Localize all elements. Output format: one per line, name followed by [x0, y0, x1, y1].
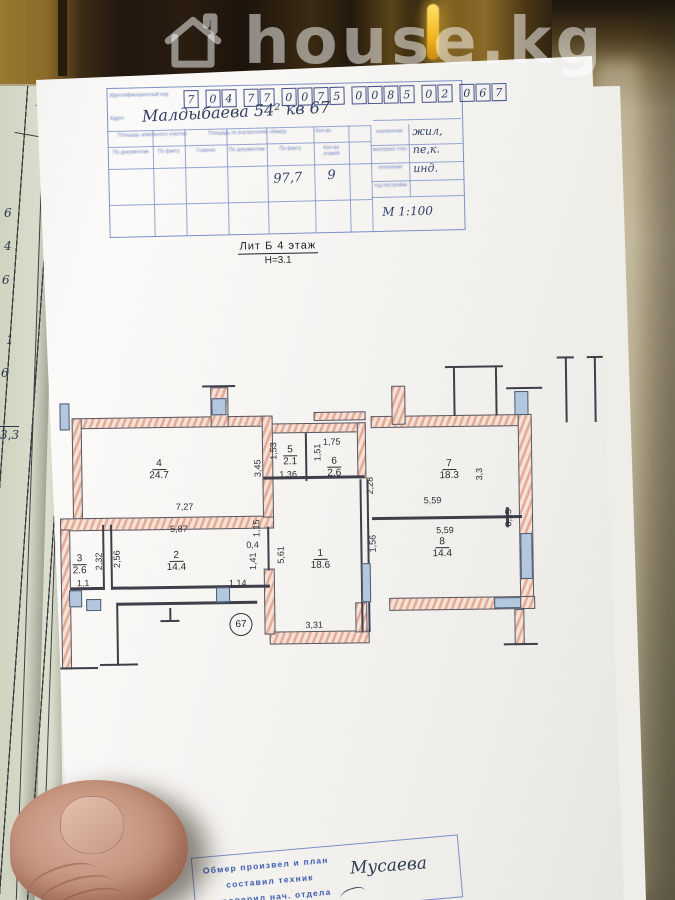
dimension-label: 5,59: [424, 496, 442, 505]
column-header: Главная: [186, 147, 226, 154]
wall-segment: [116, 603, 119, 666]
side-doc-entry: 3,3: [0, 426, 19, 442]
form-line: [372, 179, 464, 182]
dimension-label: 1,41: [249, 552, 258, 570]
dimension-label: 1,14: [229, 579, 247, 588]
wall-segment: [72, 416, 270, 430]
section-header: Площадь земельного участка: [109, 131, 195, 139]
wall-tick: [557, 356, 574, 358]
side-doc-entry: 6: [4, 206, 12, 220]
wall-segment: [263, 422, 366, 433]
id-digit: 0: [367, 86, 382, 104]
wall-tick: [202, 385, 235, 387]
wall-segment: [305, 433, 308, 481]
row-value: инд.: [413, 162, 438, 176]
apartment-number-circle: 67: [229, 613, 252, 636]
dimension-label: 1,53: [269, 442, 278, 460]
room-area: 2.6: [327, 468, 341, 480]
column-header: По факту: [268, 145, 313, 152]
dimension-label: 5,59: [436, 526, 454, 535]
wall-segment: [495, 367, 498, 415]
room-number: 6: [327, 456, 341, 468]
room-area: 24.7: [149, 470, 169, 482]
dimension-label: 2,28: [366, 477, 375, 495]
room-number: 8: [435, 536, 449, 548]
side-doc-entry: 4: [4, 239, 12, 253]
wall-segment: [60, 516, 274, 532]
room-area: 14.4: [432, 548, 452, 560]
ceiling-height-label: Н=3.1: [222, 254, 334, 267]
row-value: пе,к.: [413, 143, 440, 157]
window: [59, 403, 69, 430]
window: [69, 590, 82, 607]
room-number: 1: [313, 548, 327, 560]
dimension-label: 5,61: [277, 546, 286, 564]
id-digit: 0: [421, 85, 436, 103]
wall-segment: [391, 386, 406, 425]
wall-tick: [504, 643, 538, 645]
form-line: [373, 118, 461, 121]
id-code-label: Идентификационный код: [109, 91, 181, 99]
dimension-label: 1,56: [369, 535, 378, 553]
form-line: [110, 199, 372, 206]
column-header: Кол-во этажей: [315, 145, 348, 158]
row-label: год постройки: [373, 182, 409, 189]
room-number: 4: [152, 458, 166, 470]
dimension-label: 2,32: [95, 553, 104, 571]
wall-segment: [453, 368, 456, 416]
total-area-value: 97,7: [273, 170, 303, 187]
side-doc-entry: 1: [6, 333, 14, 347]
form-line: [372, 195, 464, 198]
cabinet-frame: [58, 0, 67, 76]
room-area: 14.4: [167, 562, 187, 574]
dimension-label: 1,1: [77, 579, 90, 588]
main-sheet: Идентификационный код 7 0 4 7 7 0 0 7 5 …: [0, 0, 675, 900]
id-digit: 5: [329, 87, 344, 105]
room-number: 3: [73, 553, 87, 565]
wall-segment: [594, 356, 597, 422]
floor-plan: 7,27 5,87 3,45 1,53 1,36 1,75 1,51 2,28 …: [56, 356, 566, 679]
id-digit: 8: [383, 85, 398, 103]
thumbnail-nail: [60, 796, 124, 854]
wall-segment: [264, 569, 276, 635]
id-digit: 0: [351, 86, 366, 104]
id-digit: 6: [475, 83, 490, 101]
dimension-label: 1,75: [323, 438, 341, 447]
dimension-label: 1,15: [252, 519, 261, 537]
dimension-label: 3,45: [253, 459, 262, 477]
wall-segment: [514, 609, 525, 645]
wall-segment: [117, 601, 257, 606]
wall-tick: [506, 387, 542, 390]
site-name: house.kg: [244, 5, 605, 79]
row-label: отопление: [372, 164, 408, 171]
row-label: назначение: [371, 128, 407, 135]
room-label: 4 24.7: [149, 458, 169, 482]
dimension-label: 0,4: [246, 541, 259, 550]
dimension-label: 3,3: [475, 468, 484, 481]
wall-segment: [314, 411, 366, 421]
dimension-label: 5,87: [170, 525, 188, 534]
wall-segment: [262, 416, 274, 518]
window: [514, 391, 528, 415]
room-number: 5: [283, 444, 297, 456]
room-label: 5 2.1: [283, 444, 297, 468]
dimension-label: 2,56: [113, 550, 122, 568]
window: [216, 587, 230, 602]
liter-floor-label: Лит Б 4 этаж: [237, 239, 318, 254]
column-header: По документам: [110, 149, 152, 156]
room-label: 3 2.6: [72, 553, 86, 577]
dimension-label: 1,36: [279, 470, 297, 479]
room-label: 7 18.3: [439, 458, 459, 482]
watermark: house.kg: [156, 0, 605, 86]
dimension-label: 7,27: [176, 503, 194, 512]
room-label: 8 14.4: [432, 536, 452, 560]
photo-of-floorplan-document: № 1 прочие 6 4 6 1 6 3,3 Идентификационн…: [0, 0, 675, 900]
house-icon: [156, 7, 230, 77]
window: [494, 597, 521, 608]
id-digit: 5: [399, 85, 414, 103]
wall-segment: [372, 515, 522, 520]
window: [520, 533, 533, 579]
room-area: 2.6: [73, 565, 87, 577]
room-number: 7: [442, 458, 456, 470]
floors-value: 9: [327, 168, 336, 183]
section-header: Кол-во: [300, 128, 346, 135]
form-line: [370, 125, 373, 231]
form-table: Идентификационный код 7 0 4 7 7 0 0 7 5 …: [106, 80, 465, 238]
room-number: 2: [169, 550, 183, 562]
side-doc-entry: 6: [1, 366, 9, 380]
door-block: [362, 563, 372, 602]
window: [86, 599, 101, 611]
room-area: 18.3: [439, 470, 459, 482]
dimension-label: 1,51: [313, 444, 322, 462]
wall-segment: [357, 422, 367, 478]
wall-tick: [587, 356, 603, 358]
column-header: По факту: [154, 148, 184, 155]
column-header: По документам: [228, 146, 266, 153]
dimension-label: 3,31: [305, 621, 323, 630]
scale-value: М 1:100: [382, 204, 433, 219]
id-digit: 0: [459, 84, 474, 102]
section-header: Площадь по внутреннему обмеру: [198, 129, 296, 137]
address-value: Малдыбаева 54² кв 67: [142, 98, 331, 126]
wall-segment: [565, 356, 568, 422]
window: [211, 398, 226, 415]
row-value: жил,: [412, 124, 442, 138]
row-label: материал стен: [372, 146, 408, 153]
room-label: 1 18.6: [310, 548, 330, 572]
room-label: 2 14.4: [166, 550, 186, 574]
wall-segment: [267, 527, 270, 571]
id-digit: 2: [437, 84, 452, 102]
plan-title: Лит Б 4 этаж Н=3.1: [222, 235, 335, 267]
room-label: 6 2.6: [327, 456, 341, 480]
address-label: Адрес: [110, 115, 140, 122]
door-tick: [160, 620, 179, 622]
wall-segment: [72, 418, 83, 522]
side-doc-entry: 6: [2, 273, 10, 287]
room-area: 2.1: [283, 456, 297, 468]
dimension-label: 0,15: [504, 509, 513, 527]
room-area: 18.6: [311, 560, 331, 572]
apartment-number: 67: [235, 619, 246, 630]
